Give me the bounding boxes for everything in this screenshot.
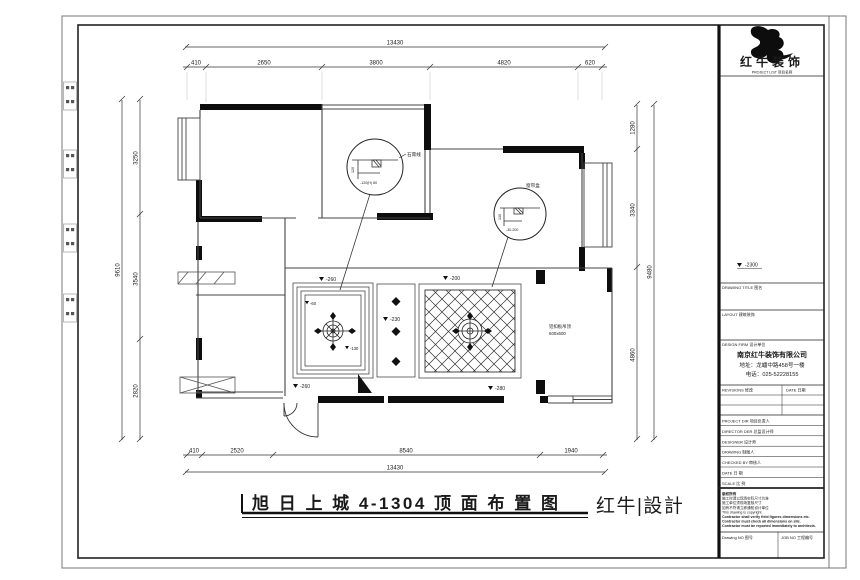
dim-top-seg4: 620 bbox=[585, 61, 596, 67]
note-line: 施工单位须现场复核尺寸 bbox=[722, 500, 762, 505]
bay-window-right bbox=[584, 163, 612, 247]
level-hall: -230 bbox=[390, 317, 400, 323]
living-ceiling bbox=[419, 284, 521, 378]
dim-top-total: 13430 bbox=[387, 41, 404, 47]
layout-label: LAYOUT 建筑装饰 bbox=[722, 311, 755, 317]
right-room-note: 铝扣板吊顶 600x600 bbox=[549, 323, 572, 336]
brand-mark: 红牛|設計 bbox=[596, 495, 684, 517]
staff-row-label: DESIGNER 设计师 bbox=[722, 438, 756, 444]
dim-bottom-total: 13430 bbox=[387, 466, 404, 472]
drawing-title: 旭 日 上 城 4-1304 顶 面 布 置 图 bbox=[251, 493, 560, 513]
level-living-top: -200 bbox=[450, 276, 460, 282]
drawing-sheet: 13430 410 2650 3800 4820 620 13430 410 2… bbox=[0, 0, 860, 580]
note-line: Contractor must be reported immediately … bbox=[722, 524, 816, 528]
dim-right-total: 9480 bbox=[648, 265, 654, 279]
staff-row-label: DATE 日 期 bbox=[722, 470, 743, 476]
dim-right-seg0: 1280 bbox=[631, 121, 637, 135]
job-no-label: JOB NO 工程编号 bbox=[781, 534, 813, 540]
logo-text: 红牛装饰 bbox=[740, 54, 804, 69]
entry-door bbox=[284, 403, 318, 437]
dim-bottom-seg3: 1940 bbox=[564, 449, 578, 455]
note-right-line2: 600x600 bbox=[549, 331, 566, 336]
dim-top-seg0: 410 bbox=[191, 61, 202, 67]
corridor-ceiling bbox=[377, 284, 415, 377]
dim-left-seg0: 3250 bbox=[134, 151, 140, 165]
dim-top-seg3: 4820 bbox=[497, 61, 511, 67]
callout2-dim-v: 130 bbox=[498, 214, 502, 220]
drawing-title-label: DRAWING TITLE 图名 bbox=[722, 284, 762, 290]
project-list-label: PROJECT LIST 项目名称 bbox=[752, 70, 793, 75]
staff-row-label: PROJECT DIR 项目负责人 bbox=[722, 418, 770, 424]
staff-row-label: DIRECTOR DER 总监设计师 bbox=[722, 428, 773, 434]
fixtures bbox=[178, 272, 235, 393]
note-line: This drawing is copyright. bbox=[722, 510, 763, 514]
elevation-mark: -2300 bbox=[737, 263, 762, 269]
elevation-mark-value: -2300 bbox=[745, 263, 758, 269]
callout2-dim-h: -30-200 bbox=[506, 228, 518, 232]
dim-top-seg2: 3800 bbox=[369, 61, 383, 67]
drawing-no-label: Drawing NO 图号 bbox=[722, 534, 753, 540]
dim-left-seg1: 3540 bbox=[134, 272, 140, 286]
level-dining-bottom: -260 bbox=[300, 384, 310, 390]
level-dining-top: -260 bbox=[326, 277, 336, 283]
door-leaf-mark bbox=[358, 374, 372, 393]
note-right-line1: 铝扣板吊顶 bbox=[549, 323, 572, 330]
titleblock: 红牛装饰 PROJECT LIST 项目名称 -2300 bbox=[719, 26, 824, 558]
dim-bottom-seg0: 410 bbox=[189, 449, 200, 455]
note-line: Contractor shall verify field figures di… bbox=[722, 515, 810, 519]
drawing-title-bar: 旭 日 上 城 4-1304 顶 面 布 置 图 红牛|設計 bbox=[242, 493, 684, 518]
date-label: DATE 日期 bbox=[786, 387, 805, 393]
note-line: 版权所有 bbox=[722, 491, 737, 496]
level-dining-in1: -60 bbox=[310, 301, 317, 306]
note-line: 如有不符请立即通知设计单位 bbox=[722, 505, 769, 510]
callout2-label: 窗帘盒 bbox=[526, 182, 540, 189]
dim-left-total: 9610 bbox=[116, 263, 122, 277]
note-line: Contractor must check all dimensions on … bbox=[722, 520, 801, 524]
dim-bottom-seg1: 2520 bbox=[230, 449, 244, 455]
firm-addr: 地址：龙蟠中路458号一楼 bbox=[739, 361, 805, 369]
note-line: 施工时请以现场实际尺寸为准 bbox=[722, 496, 769, 501]
firm-tel: 电话：025-52228155 bbox=[746, 370, 799, 378]
bay-window-left bbox=[178, 118, 200, 180]
staff-row-label: CHECKED BY 审核人 bbox=[722, 459, 761, 465]
callout1-dim-v: 120 bbox=[351, 167, 355, 173]
staff-row-label: SCALE 比 例 bbox=[722, 480, 745, 486]
ceiling-lamp-icon bbox=[392, 297, 401, 366]
level-dining-in2: -130 bbox=[350, 346, 359, 351]
ceiling-plan-drawing: 13430 410 2650 3800 4820 620 13430 410 2… bbox=[0, 0, 860, 580]
dim-right-seg1: 3340 bbox=[631, 203, 637, 217]
staff-row-label: DRAWING 制图人 bbox=[722, 449, 754, 455]
dim-top-seg1: 2650 bbox=[257, 61, 271, 67]
dim-right-seg2: 4860 bbox=[631, 348, 637, 362]
design-firm-label: DESIGN FIRM 设计单位 bbox=[722, 341, 765, 347]
callout1-dim-h: -120(H) 80 bbox=[360, 181, 377, 185]
dim-bottom-seg2: 8540 bbox=[399, 449, 413, 455]
firm-name: 南京红牛装饰有限公司 bbox=[737, 350, 807, 359]
dim-left-seg2: 2820 bbox=[134, 384, 140, 398]
window-bottom-right bbox=[573, 396, 612, 403]
level-living-bottom: -280 bbox=[495, 386, 505, 392]
revisions-label: REVISIONS 修改 bbox=[722, 387, 753, 393]
walls-black bbox=[196, 104, 612, 403]
left-margin-strip bbox=[64, 82, 77, 322]
binding-strip-marks bbox=[66, 86, 74, 315]
callout1-label: 石膏线 bbox=[407, 151, 421, 158]
